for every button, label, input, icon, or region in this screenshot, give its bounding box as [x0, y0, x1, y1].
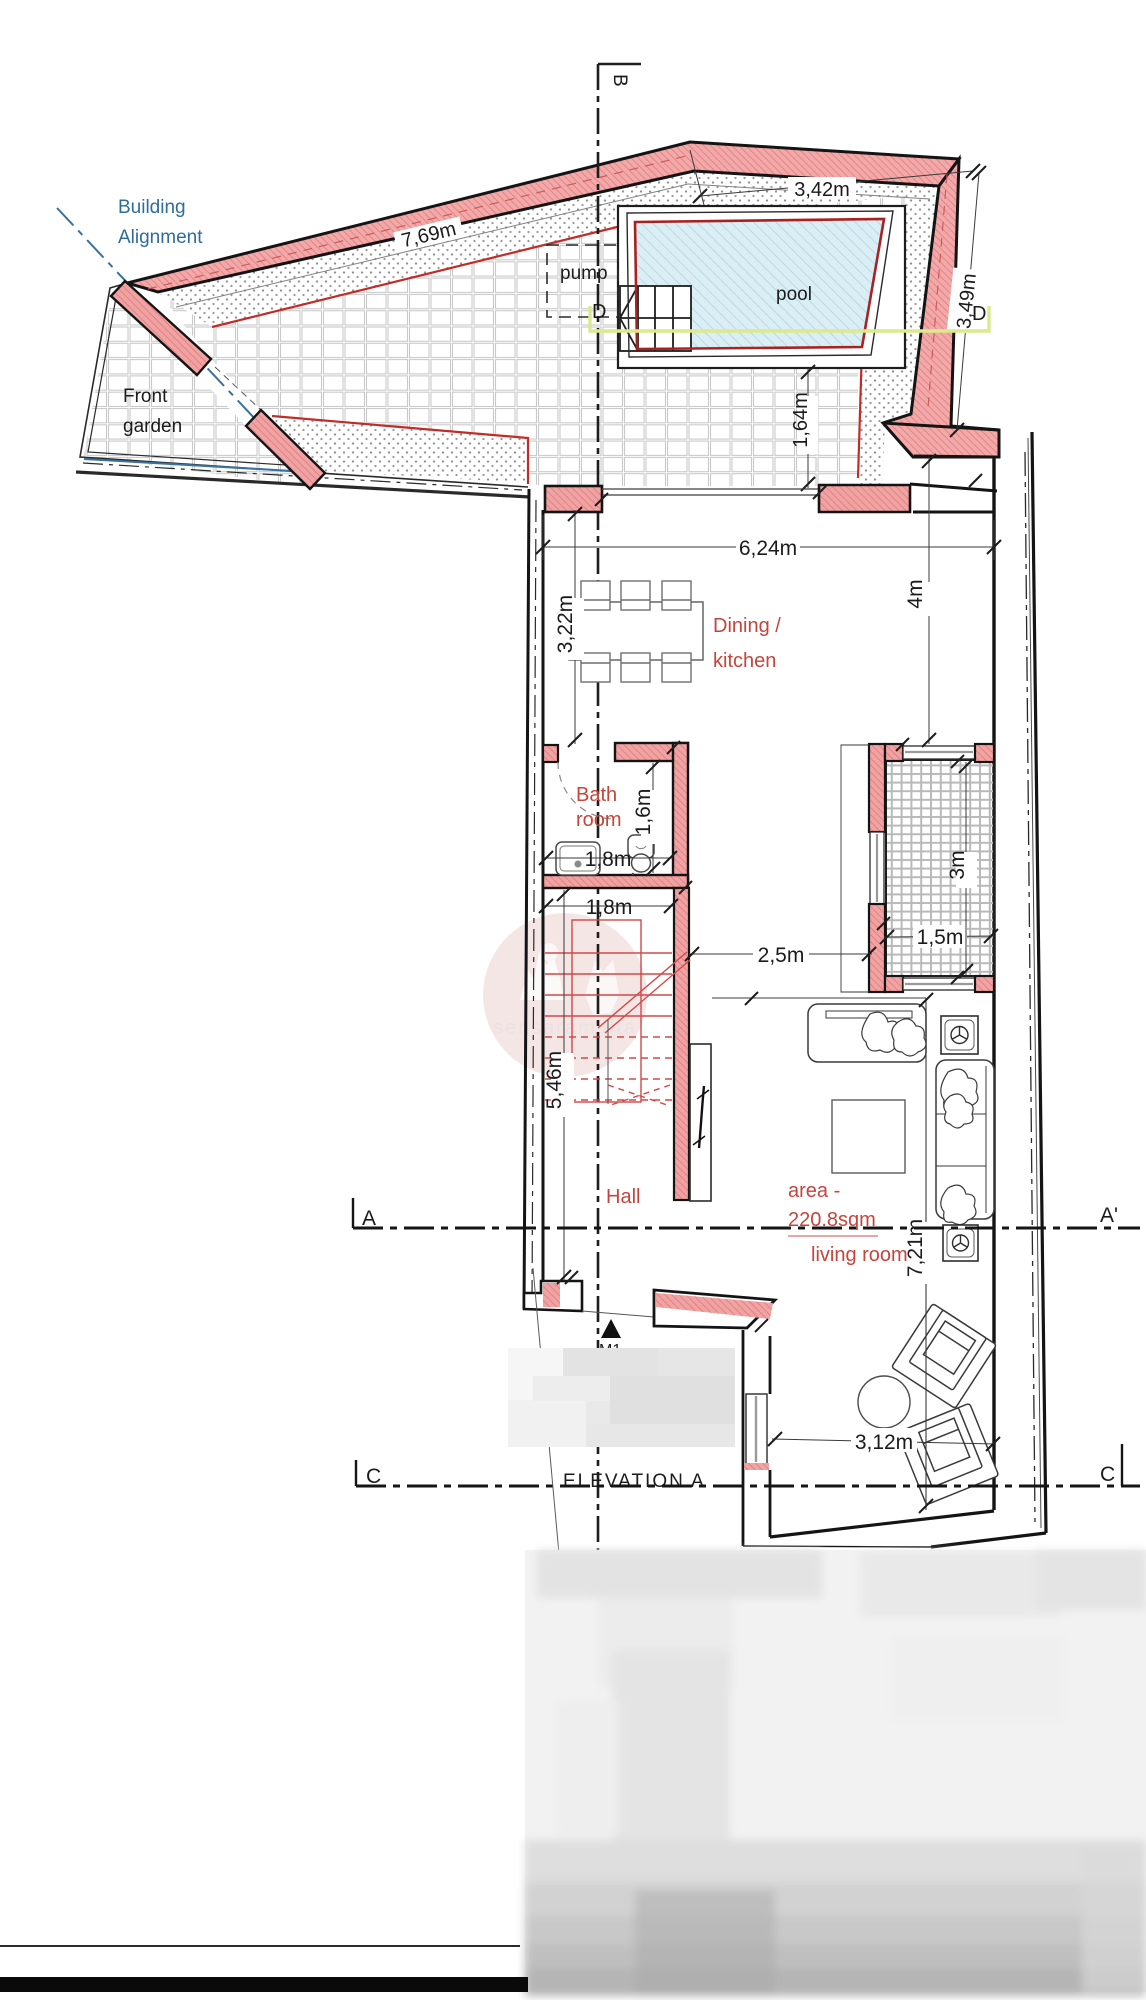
svg-text:pool: pool [776, 284, 812, 305]
svg-text:ELEVATION A: ELEVATION A [563, 1471, 706, 1492]
svg-text:Alignment: Alignment [118, 227, 203, 248]
svg-text:C: C [366, 1465, 381, 1488]
svg-text:A: A [362, 1207, 376, 1230]
svg-text:sensaramalta: sensaramalta [493, 1017, 637, 1039]
svg-text:garden: garden [123, 416, 182, 437]
svg-text:1,8m: 1,8m [586, 896, 633, 919]
svg-text:3,42m: 3,42m [794, 179, 850, 201]
svg-text:Building: Building [118, 197, 186, 218]
svg-text:kitchen: kitchen [713, 650, 776, 672]
svg-text:Hall: Hall [606, 1186, 640, 1208]
svg-text:D: D [592, 301, 606, 323]
svg-text:3m: 3m [946, 850, 969, 879]
svg-text:3,12m: 3,12m [855, 1431, 913, 1454]
svg-text:B: B [609, 74, 630, 87]
svg-text:Bath: Bath [576, 784, 617, 806]
svg-text:4m: 4m [904, 579, 927, 608]
svg-text:pump: pump [560, 263, 608, 284]
svg-text:1,5m: 1,5m [917, 926, 964, 949]
svg-text:3,22m: 3,22m [554, 595, 577, 653]
svg-text:Front: Front [123, 386, 168, 407]
svg-text:6,24m: 6,24m [739, 537, 797, 560]
svg-text:room: room [576, 809, 622, 831]
svg-text:Dining /: Dining / [713, 615, 781, 637]
svg-text:1,6m: 1,6m [632, 789, 655, 836]
svg-text:5,46m: 5,46m [543, 1051, 566, 1109]
svg-text:A': A' [1100, 1204, 1118, 1227]
svg-text:1,8m: 1,8m [585, 848, 632, 871]
svg-text:2,5m: 2,5m [758, 944, 805, 967]
svg-text:C: C [1100, 1463, 1115, 1486]
svg-text:area -: area - [788, 1180, 840, 1202]
svg-text:living room: living room [811, 1244, 908, 1266]
svg-text:1,64m: 1,64m [790, 392, 812, 448]
svg-text:D: D [972, 303, 986, 325]
